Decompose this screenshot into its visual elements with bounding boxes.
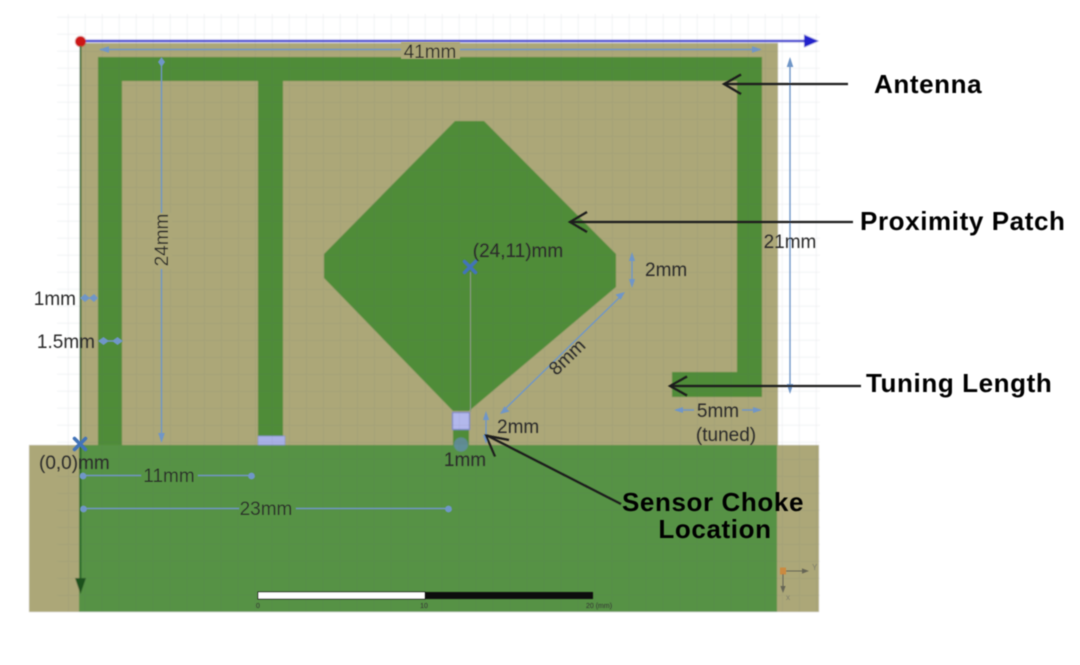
svg-text:0: 0 xyxy=(256,603,260,610)
svg-text:x: x xyxy=(786,593,790,602)
svg-text:Location: Location xyxy=(658,514,771,544)
svg-text:Proximity Patch: Proximity Patch xyxy=(860,206,1066,236)
svg-text:Tuning Length: Tuning Length xyxy=(866,368,1052,398)
svg-text:1.5mm: 1.5mm xyxy=(37,332,95,353)
svg-text:5mm: 5mm xyxy=(697,401,739,422)
svg-text:10: 10 xyxy=(420,603,428,610)
svg-text:21mm: 21mm xyxy=(764,232,817,253)
svg-text:1mm: 1mm xyxy=(444,450,486,471)
svg-text:1mm: 1mm xyxy=(34,289,76,310)
svg-text:41mm: 41mm xyxy=(404,42,457,63)
svg-text:Y: Y xyxy=(812,563,818,572)
svg-text:(24,11)mm: (24,11)mm xyxy=(473,241,563,262)
svg-text:Antenna: Antenna xyxy=(874,69,982,99)
svg-text:(0,0)mm: (0,0)mm xyxy=(39,453,110,474)
svg-text:Sensor Choke: Sensor Choke xyxy=(622,487,804,517)
svg-text:2mm: 2mm xyxy=(497,417,539,438)
svg-text:2mm: 2mm xyxy=(645,260,687,281)
svg-text:(tuned): (tuned) xyxy=(696,425,756,446)
svg-text:24mm: 24mm xyxy=(152,214,173,267)
svg-text:20 (mm): 20 (mm) xyxy=(586,603,612,610)
svg-text:23mm: 23mm xyxy=(240,499,293,520)
svg-text:11mm: 11mm xyxy=(143,466,194,487)
